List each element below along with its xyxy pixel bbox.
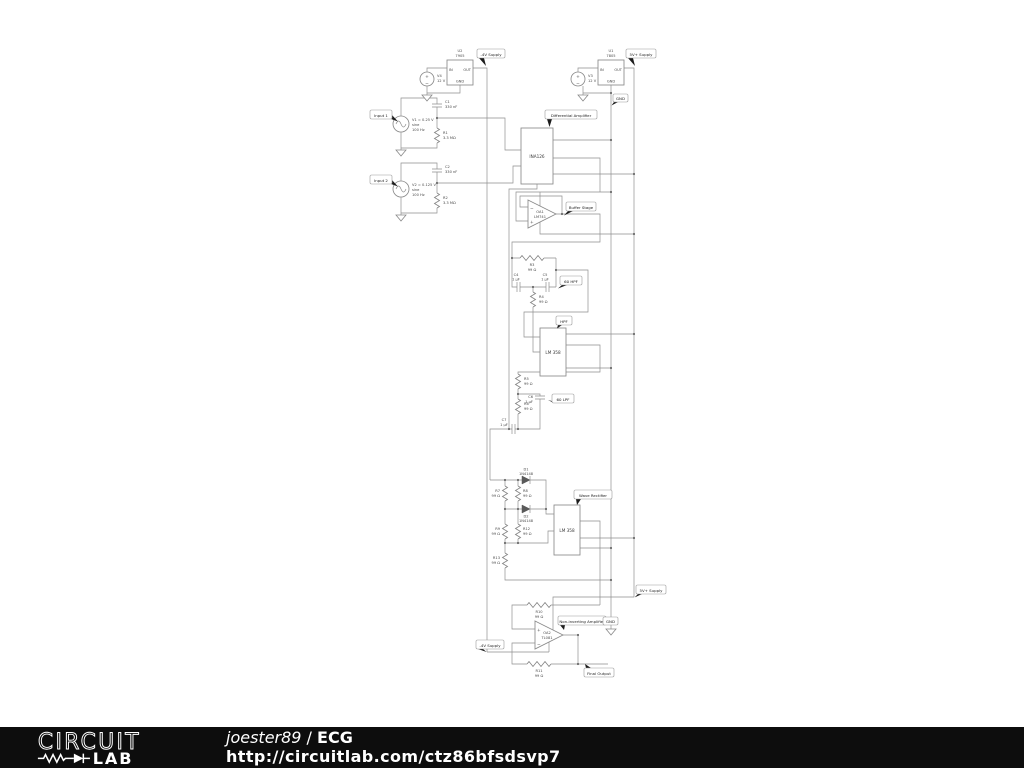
resistor-r8 (516, 486, 521, 501)
ground-icon (606, 629, 616, 635)
flag-hpf: HPF (556, 316, 572, 329)
v3-plus-sign: + (576, 74, 580, 80)
r10-ref: R10 (535, 610, 543, 614)
u2-ref: U2 (458, 49, 463, 53)
flag-label: Final Output (587, 671, 611, 676)
flag-label: HPF (560, 319, 568, 324)
flag-label: -4V Supply (480, 52, 502, 57)
flag-label: -4V Supply (479, 643, 501, 648)
input1-source: V1 = 0.25 V sine 100 Hz C1 330 nF R1 3.3… (393, 100, 457, 143)
r13-ref: R13 (493, 556, 500, 560)
r7-value: 99 Ω (492, 494, 501, 498)
ground-icon (578, 95, 588, 101)
cap-c6-plates (535, 396, 545, 399)
flag-gnd-top: GND (612, 94, 629, 106)
d1-value: 1N4148 (519, 472, 534, 476)
v4-minus-sign: − (425, 82, 429, 87)
flag-pointer (558, 285, 567, 289)
r12-ref: R12 (523, 527, 530, 531)
oa1-ref: OA1 (536, 210, 544, 214)
ecg-schematic: + − V4 12 V U2 7905 IN OUT GND + − V3 12… (0, 0, 1024, 727)
footer-separator: / (301, 728, 317, 747)
v2-line2: sine (412, 188, 420, 192)
flag-noninverting-amplifier: Non-inverting Amplifier (558, 616, 606, 630)
v4-ref: V4 (437, 74, 442, 78)
ground-icon (396, 215, 406, 221)
flag-label: Differential Amplifier (551, 113, 592, 118)
r1-value: 3.3 MΩ (443, 136, 456, 140)
r9-value: 99 Ω (492, 532, 501, 536)
flag-label: Buffer Stage (569, 205, 594, 210)
flag-pointer (635, 594, 643, 598)
ground-icon (396, 150, 406, 156)
u1-pin-gnd: GND (607, 80, 615, 84)
resistor-r5 (516, 374, 521, 389)
u1-pin-in: IN (600, 68, 604, 72)
r3-ref: R3 (530, 263, 535, 267)
resistor-r2 (435, 193, 440, 208)
r12-value: 99 Ω (523, 532, 532, 536)
footer-title: ECG (317, 728, 353, 747)
c7-value: 1 µF (500, 423, 508, 427)
oa2-minus-sign: − (537, 643, 541, 648)
c4-ref: C4 (514, 273, 520, 277)
c6-value: 1 µF (525, 400, 533, 404)
output-stage: R10 99 Ω + − OA2 TL081 R11 99 Ω (527, 603, 563, 679)
flag-60-lpf: 60 LPF (548, 394, 574, 403)
flag-pointer (576, 499, 581, 505)
resistor-r11 (527, 662, 551, 667)
v3-ref: V3 (588, 74, 593, 78)
logo-resistor-diode-icon (38, 753, 90, 762)
resistor-r9 (503, 524, 508, 539)
resistor-r1 (435, 128, 440, 143)
flag-neg-supply-top: -4V Supply (477, 49, 505, 66)
v2-line1: V2 = 0.125 V (412, 183, 436, 187)
diode-d1 (522, 476, 530, 484)
u2-part: 7905 (455, 54, 464, 58)
r2-ref: R2 (443, 196, 448, 200)
flag-label: GND (606, 619, 615, 624)
u2-pin-in: IN (449, 68, 453, 72)
flag-label: 5V+ Supply (630, 52, 654, 57)
flag-neg-supply-bottom: -4V Supply (476, 640, 504, 652)
flag-gnd-bottom: GND (603, 617, 618, 625)
footer-author: joester89 (226, 728, 301, 747)
oa1-buffer: − + OA1 LM741 (528, 200, 556, 228)
flag-label: Input 1 (374, 113, 388, 118)
resistor-zigzag-glyph (38, 754, 74, 762)
r5-ref: R5 (524, 377, 529, 381)
circuitlab-share-page: + − V4 12 V U2 7905 IN OUT GND + − V3 12… (0, 0, 1024, 768)
wires-twin-t-hpf (512, 258, 634, 374)
u2-pin-gnd: GND (456, 80, 464, 84)
r3-value: 99 Ω (528, 268, 537, 272)
flag-label: 60 LPF (557, 397, 571, 402)
oa1-part: LM741 (534, 215, 546, 219)
r13-value: 99 Ω (492, 561, 501, 565)
diode-bar-glyph (83, 753, 90, 762)
flag-label: Wave Rectifier (579, 493, 607, 498)
v1-line3: 100 Hz (412, 128, 425, 132)
diode-d2 (522, 505, 530, 513)
c6-ref: C6 (528, 395, 534, 399)
flag-pointer (478, 649, 487, 652)
resistor-r10 (527, 603, 551, 608)
v3-minus-sign: − (576, 82, 580, 87)
r9-ref: R9 (495, 527, 500, 531)
circuitlab-logo: CIRCUIT LAB (36, 729, 178, 767)
oa1-plus-sign: + (530, 220, 534, 226)
flag-pointer (547, 119, 552, 127)
logo-word-lab: LAB (93, 749, 134, 767)
flag-pointer (479, 58, 486, 66)
wires-right-supply (578, 68, 634, 626)
cap-c1-plates (432, 104, 442, 107)
v2-line3: 100 Hz (412, 193, 425, 197)
resistor-r6 (516, 399, 521, 414)
cap-c5-plates (546, 282, 549, 292)
footer-meta: joester89 / ECG http://circuitlab.com/ct… (226, 729, 561, 766)
oa2-ref: OA2 (543, 631, 551, 635)
flag-label: 60 HPF (564, 279, 578, 284)
r2-value: 3.3 MΩ (443, 201, 456, 205)
ina126-amp: INA126 (521, 128, 553, 184)
d2-ref: D2 (523, 515, 528, 519)
r6-value: 99 Ω (524, 407, 533, 411)
r8-value: 99 Ω (523, 494, 532, 498)
resistor-r13 (503, 553, 508, 568)
lm358-hpf-label: LM 358 (545, 350, 561, 355)
flag-input1: Input 1 (370, 110, 398, 122)
u1-ref: U1 (609, 49, 614, 53)
r8-ref: R8 (523, 489, 528, 493)
flag-differential-amplifier: Differential Amplifier (545, 110, 597, 127)
r7-ref: R7 (495, 489, 500, 493)
c7-ref: C7 (502, 418, 507, 422)
footer-bar: CIRCUIT LAB joester89 / ECG http://circu… (0, 727, 1024, 768)
flag-pos-supply-bottom: 5V+ Supply (635, 585, 667, 598)
r10-value: 99 Ω (535, 615, 544, 619)
lm358-rectifier-label: LM 358 (559, 528, 575, 533)
flag-pointer (628, 58, 635, 66)
flag-label: Non-inverting Amplifier (559, 619, 605, 624)
lm358-hpf: LM 358 (540, 328, 566, 376)
resistor-r4 (531, 292, 536, 307)
footer-byline: joester89 / ECG (226, 729, 561, 747)
r5-value: 99 Ω (524, 382, 533, 386)
flag-wave-rectifier: Wave Rectifier (574, 490, 612, 505)
c2-ref: C2 (445, 165, 450, 169)
r4-ref: R4 (539, 295, 544, 299)
resistor-r12 (516, 524, 521, 539)
flag-pointer (560, 625, 565, 630)
u2-pin-out: OUT (463, 68, 471, 72)
r4-value: 99 Ω (539, 300, 548, 304)
flag-input2: Input 2 (370, 175, 398, 187)
u1-part: 7805 (606, 54, 615, 58)
c5-ref: C5 (543, 273, 548, 277)
diode-glyph (74, 753, 83, 762)
flag-label: GND (616, 96, 625, 101)
cap-c2-plates (432, 169, 442, 172)
v3-value: 12 V (588, 79, 597, 83)
input2-source: V2 = 0.125 V sine 100 Hz C2 330 nF R2 3.… (393, 165, 457, 208)
oa1-minus-sign: − (530, 207, 534, 212)
flag-label: Input 2 (374, 178, 388, 183)
cap-c4-plates (517, 282, 520, 292)
footer-url: http://circuitlab.com/ctz86bfsdsvp7 (226, 748, 561, 766)
flag-final-output: Final Output (584, 664, 614, 677)
flag-label: 5V+ Supply (640, 588, 664, 593)
d1-ref: D1 (523, 468, 528, 472)
d2-value: 1N4148 (519, 519, 534, 523)
resistor-r7 (503, 486, 508, 501)
v1-line2: sine (412, 123, 420, 127)
r11-value: 99 Ω (535, 674, 544, 678)
r1-ref: R1 (443, 131, 448, 135)
flag-pointer (612, 102, 619, 106)
oa2-plus-sign: + (537, 628, 541, 634)
c5-value: 1 µF (541, 278, 549, 282)
c1-ref: C1 (445, 100, 450, 104)
v1-line1: V1 = 0.25 V (412, 118, 434, 122)
ina126-label: INA126 (529, 154, 545, 159)
r11-ref: R11 (535, 669, 542, 673)
flag-buffer-stage: Buffer Stage (564, 202, 596, 216)
c4-value: 1 µF (512, 278, 520, 282)
c2-value: 330 nF (445, 170, 457, 174)
flag-pointer (585, 664, 591, 668)
schematic-wires (401, 68, 634, 664)
u1-pin-out: OUT (614, 68, 622, 72)
v4-value: 12 V (437, 79, 446, 83)
oa2-part: TL081 (540, 636, 552, 640)
resistor-r3 (520, 256, 544, 261)
flag-pos-supply-top: 5V+ Supply (626, 49, 656, 66)
lpf-stage: R5 99 Ω R6 99 Ω C6 1 µF C7 1 µF (500, 374, 545, 434)
flag-pointer (564, 211, 573, 216)
wires-left-supply (427, 68, 487, 652)
twin-t-hpf: R3 99 Ω C4 1 µF C5 1 µF R4 99 Ω (512, 256, 549, 308)
flag-60-hpf: 60 HPF (558, 276, 582, 289)
v4-plus-sign: + (425, 74, 429, 80)
cap-c7-plates (512, 424, 515, 434)
c1-value: 330 nF (445, 105, 457, 109)
